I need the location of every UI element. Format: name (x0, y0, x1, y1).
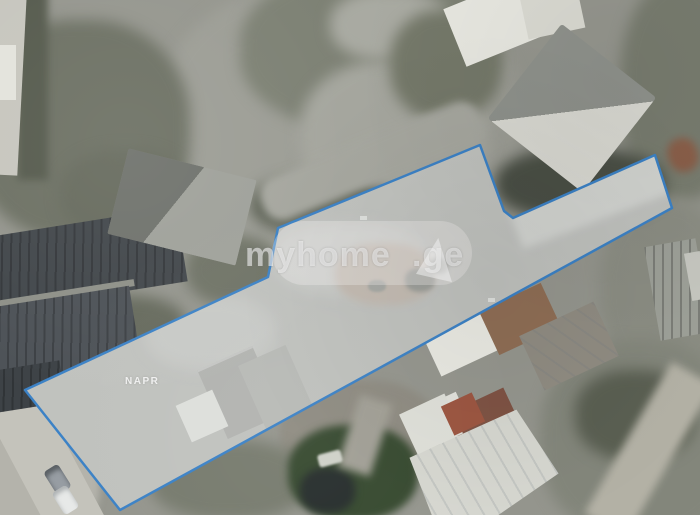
watermark-napr: NAPR (125, 377, 159, 387)
bright-object-on-road (0, 45, 16, 100)
watermark-brand: myhome (245, 238, 391, 272)
parcel-white-dot-1 (360, 216, 367, 220)
aerial-photo: myhome .ge NAPR (0, 0, 700, 515)
tree-shadow-dark-bottom (300, 468, 355, 513)
parcel-white-dot-2 (488, 298, 495, 302)
